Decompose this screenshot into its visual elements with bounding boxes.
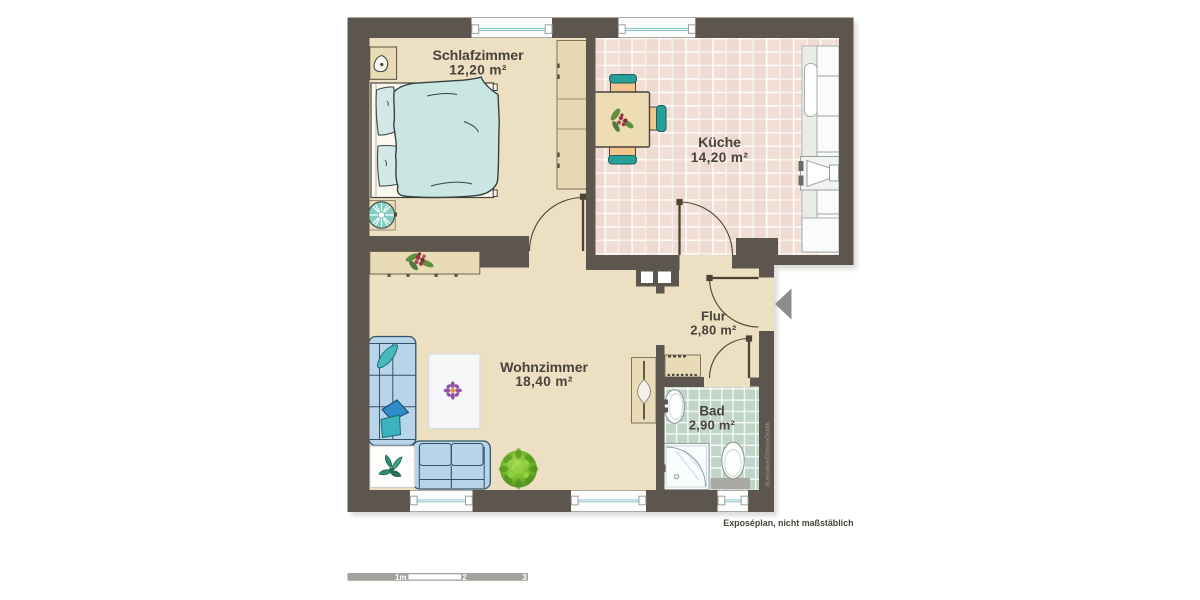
svg-text:1m: 1m — [395, 573, 407, 582]
svg-text:Flur: Flur — [701, 309, 726, 324]
svg-text:2,80 m²: 2,80 m² — [690, 323, 736, 338]
svg-text:3: 3 — [522, 573, 527, 582]
svg-text:Exposéplan, nicht maßstäblich: Exposéplan, nicht maßstäblich — [723, 518, 853, 528]
svg-text:Küche: Küche — [698, 135, 741, 151]
svg-text:2,90 m²: 2,90 m² — [689, 418, 735, 433]
svg-text:14,20 m²: 14,20 m² — [691, 150, 749, 165]
svg-text:Bad: Bad — [699, 404, 724, 419]
svg-text:Illustration©ImmoGrafik: Illustration©ImmoGrafik — [765, 421, 772, 487]
svg-text:18,40 m²: 18,40 m² — [515, 374, 573, 389]
svg-text:12,20 m²: 12,20 m² — [449, 63, 507, 78]
svg-text:2: 2 — [462, 573, 467, 582]
